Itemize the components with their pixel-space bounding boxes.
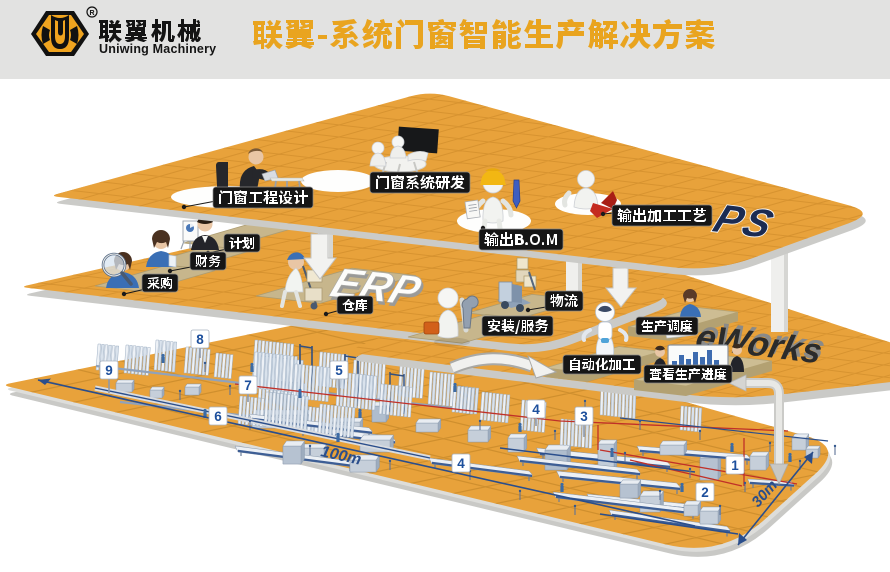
svg-text:R: R xyxy=(89,10,94,17)
svg-text:3: 3 xyxy=(580,409,588,424)
svg-text:1: 1 xyxy=(731,458,739,473)
svg-text:8: 8 xyxy=(196,332,204,347)
svg-text:Uniwing Machinery: Uniwing Machinery xyxy=(99,42,216,56)
svg-text:5: 5 xyxy=(335,363,343,378)
svg-text:6: 6 xyxy=(214,409,222,424)
svg-text:4: 4 xyxy=(457,456,465,471)
svg-text:9: 9 xyxy=(105,363,113,378)
svg-text:2: 2 xyxy=(701,485,709,500)
svg-text:4: 4 xyxy=(532,402,540,417)
svg-text:7: 7 xyxy=(244,378,252,393)
